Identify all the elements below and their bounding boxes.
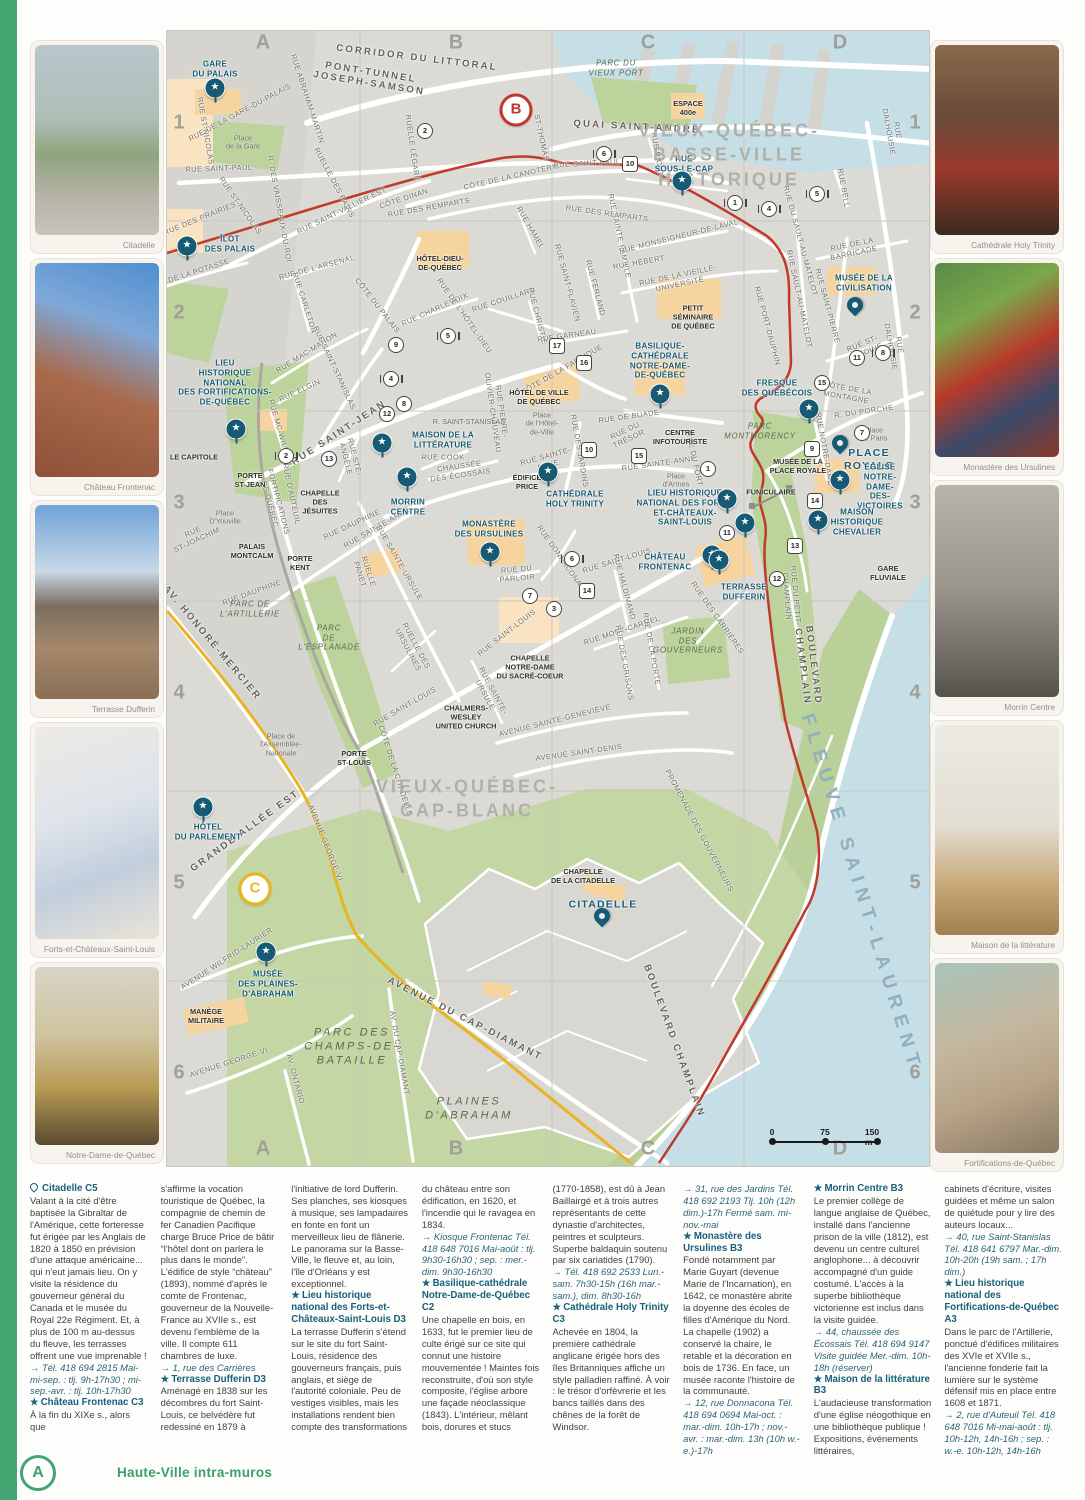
star-icon: ★	[814, 1183, 823, 1194]
district-label: VIEUX-QUÉBEC- CAP-BLANC	[376, 775, 558, 824]
photo-caption: Morrin Centre	[1004, 702, 1055, 712]
building-label: LE CAPITOLE	[170, 454, 218, 463]
grid-column-letter: D	[833, 32, 847, 55]
grid-row-number: 6	[909, 1062, 920, 1085]
poi-star-marker: ★	[717, 489, 738, 510]
grid-row-number: 1	[173, 112, 184, 135]
photo-card: Terrasse Dufferin	[30, 500, 164, 718]
poi-label: FRESQUE DES QUÉBÉCOIS	[742, 378, 813, 398]
poi-star-marker: ★	[672, 171, 693, 192]
photo-caption: Château Frontenac	[84, 482, 155, 492]
numbered-hotel-marker: 2	[417, 123, 433, 139]
photo-card: Morrin Centre	[930, 480, 1064, 716]
photo-card: Monastère des Ursulines	[930, 258, 1064, 476]
poi-label: MONASTÈRE DES URSULINES	[455, 519, 524, 539]
article-heading: ★Terrasse Dufferin D3	[161, 1374, 279, 1386]
numbered-shop-marker: 17	[549, 338, 565, 354]
photo-image	[935, 963, 1059, 1153]
poi-label: CATHÉDRALE HOLY TRINITY	[546, 489, 604, 509]
guide-map-page: CitadelleChâteau FrontenacTerrasse Duffe…	[0, 0, 1085, 1500]
poi-label: LIEU HISTORIQUE NATIONAL DES FORTIFICATI…	[178, 359, 272, 408]
poi-star-marker: ★	[256, 942, 277, 963]
grid-row-number: 2	[909, 302, 920, 325]
photo-image	[35, 45, 159, 235]
page-title: Haute-Ville intra-muros	[117, 1465, 272, 1480]
grid-column-letter: B	[449, 32, 463, 55]
adjacent-map-badge[interactable]: B	[500, 94, 533, 127]
photo-card: Forts-et-Châteaux-Saint-Louis	[30, 722, 164, 958]
grid-column-letter: C	[641, 32, 655, 55]
building-label: HÔTEL-DIEU- DE-QUÉBEC	[416, 255, 463, 273]
park-label: PARC DU VIEUX PORT	[588, 58, 643, 77]
building-label: ÉDIFICE PRICE	[513, 474, 542, 492]
building-label: MANÈGE MILITAIRE	[188, 1008, 224, 1026]
numbered-hotel-marker: 13	[321, 451, 337, 467]
numbered-hotel-marker: 12	[379, 406, 395, 422]
grid-column-letter: C	[641, 1138, 655, 1161]
poi-star-marker: ★	[480, 542, 501, 563]
grid-row-number: 3	[173, 492, 184, 515]
article-column: → 31, rue des Jardins Tél. 418 692 2193 …	[683, 1183, 801, 1451]
numbered-shop-marker: 16	[576, 355, 592, 371]
building-label: PALAIS MONTCALM	[231, 543, 274, 561]
numbered-hotel-marker: 12	[769, 571, 785, 587]
photo-caption: Cathédrale Holy Trinity	[971, 240, 1055, 250]
numbered-rest-marker: 4	[761, 201, 777, 217]
article-body: La terrasse Dufferin s'étend sur le site…	[291, 1326, 409, 1433]
building-label: CHAPELLE DE LA CITADELLE	[551, 868, 615, 886]
article-body: l'initiative de lord Dufferin. Ses planc…	[291, 1183, 409, 1290]
photo-caption: Terrasse Dufferin	[92, 704, 155, 714]
poi-label: GARE DU PALAIS	[192, 59, 237, 79]
photo-caption: Forts-et-Châteaux-Saint-Louis	[44, 944, 155, 954]
article-heading: ★Basilique-cathédrale Notre-Dame-de-Québ…	[422, 1278, 540, 1314]
building-label: PORTE KENT	[287, 555, 312, 573]
poi-star-marker: ★	[538, 462, 559, 483]
poi-star-marker: ★	[205, 78, 226, 99]
numbered-shop-marker: 13	[787, 538, 803, 554]
article-body: Fondé notamment par Marie Guyart (devenu…	[683, 1254, 801, 1397]
map-canvas: CORRIDOR DU LITTORALPONT-TUNNEL JOSEPH-S…	[166, 30, 930, 1167]
numbered-shop-marker: 10	[581, 442, 597, 458]
building-label: PETIT SÉMINAIRE DE QUÉBEC	[671, 305, 714, 332]
poi-star-marker: ★	[226, 419, 247, 440]
photo-card: Cathédrale Holy Trinity	[930, 40, 1064, 254]
grid-row-number: 4	[909, 682, 920, 705]
poi-star-marker: ★	[193, 797, 214, 818]
numbered-shop-marker: 10	[622, 156, 638, 172]
article-heading: ★Monastère des Ursulines B3	[683, 1231, 801, 1255]
photo-caption: Citadelle	[123, 240, 155, 250]
park-label: JARDIN DES GOUVERNEURS	[653, 626, 723, 655]
star-icon: ★	[553, 1302, 562, 1313]
star-icon: ★	[161, 1374, 170, 1385]
park-label: PARC DE L'ESPLANADE	[298, 623, 359, 652]
article-column: s'affirme la vocation touristique de Qué…	[161, 1183, 279, 1451]
numbered-hotel-marker: 7	[522, 588, 538, 604]
poi-star-marker: ★	[709, 550, 730, 571]
photo-image	[35, 967, 159, 1145]
numbered-site-marker: 15	[814, 375, 830, 391]
photo-image	[35, 505, 159, 699]
poi-label: HÔTEL DU PARLEMENT	[175, 822, 242, 842]
poi-label: ÎLOT DES PALAIS	[205, 234, 255, 254]
poi-star-marker: ★	[397, 467, 418, 488]
park-label: PARC MONTMORENCY	[724, 421, 796, 440]
park-label: PARC DE L'ARTILLERIE	[220, 599, 280, 618]
photo-image	[935, 263, 1059, 457]
building-label: FUNICULAIRE	[746, 489, 795, 498]
photo-caption: Maison de la littérature	[971, 940, 1055, 950]
article-column: ★Morrin Centre B3Le premier collège de l…	[814, 1183, 932, 1451]
numbered-hotel-marker: 11	[849, 350, 865, 366]
left-accent-bar	[0, 0, 17, 1500]
grid-row-number: 5	[173, 872, 184, 895]
park-label: PLAINES D'ABRAHAM	[425, 1095, 513, 1123]
scale-bar: 075150 m	[772, 1129, 878, 1149]
numbered-hotel-marker: 7	[854, 425, 870, 441]
numbered-cafe-marker: 8	[396, 396, 412, 412]
poi-star-marker: ★	[799, 399, 820, 420]
article-text-block: Citadelle C5Valant à la cité d'être bapt…	[30, 1183, 1062, 1451]
article-body: s'affirme la vocation touristique de Qué…	[161, 1183, 279, 1362]
article-heading: Citadelle C5	[30, 1183, 148, 1195]
numbered-hotel-marker: 1	[700, 461, 716, 477]
building-label: PORTE ST-JEAN	[235, 472, 266, 490]
photo-card: Maison de la littérature	[930, 720, 1064, 954]
grid-row-number: 3	[909, 492, 920, 515]
article-column: Citadelle C5Valant à la cité d'être bapt…	[30, 1183, 148, 1451]
photo-image	[935, 45, 1059, 235]
article-practical-info: → 1, rue des Carrières	[161, 1362, 279, 1374]
grid-column-letter: B	[449, 1138, 463, 1161]
photo-image	[935, 485, 1059, 697]
building-label: PORTE ST-LOUIS	[337, 750, 371, 768]
photo-caption: Fortifications-de-Québec	[964, 1158, 1055, 1168]
numbered-rest-marker: 1	[727, 195, 743, 211]
building-label: HÔTEL DE VILLE DE QUÉBEC	[509, 389, 568, 407]
place-label: Place de la Gare	[226, 135, 260, 152]
poi-star-marker: ★	[177, 236, 198, 257]
building-label: CHAPELLE DES JÉSUITES	[300, 490, 339, 517]
article-body: Le premier collège de langue anglaise de…	[814, 1195, 932, 1326]
poi-star-marker: ★	[830, 470, 851, 491]
poi-label: TERRASSE DUFFERIN	[721, 582, 767, 602]
photo-image	[35, 727, 159, 939]
article-column: (1770-1858), est dû à Jean Baillairgé et…	[553, 1183, 671, 1451]
place-label: R. SAINT-STANISLAS	[433, 418, 505, 426]
poi-star-marker: ★	[650, 384, 671, 405]
star-icon: ★	[683, 1231, 692, 1242]
article-practical-info: → Tél. 418 692 2533 Lun.-sam. 7h30-15h (…	[553, 1266, 671, 1302]
article-heading: ★Château Frontenac C3	[30, 1397, 148, 1409]
article-practical-info: → 31, rue des Jardins Tél. 418 692 2193 …	[683, 1183, 801, 1231]
poi-label: BASILIQUE- CATHÉDRALE NOTRE-DAME- DE-QUÉ…	[630, 342, 690, 381]
numbered-rest-marker: 5	[440, 328, 456, 344]
poi-label: MORRIN CENTRE	[391, 497, 426, 517]
article-body: L'audacieuse transformation d'une église…	[814, 1397, 932, 1457]
star-icon: ★	[814, 1374, 823, 1385]
place-label: Place de l'Assemblée- Nationale	[260, 732, 302, 757]
article-practical-info: → 40, rue Saint-Stanislas Tél. 418 641 6…	[944, 1231, 1062, 1279]
article-heading: ★Morrin Centre B3	[814, 1183, 932, 1195]
photo-card: Fortifications-de-Québec	[930, 958, 1064, 1172]
article-heading: ★Maison de la littérature B3	[814, 1374, 932, 1398]
numbered-rest-marker: 4	[383, 371, 399, 387]
park-label: PARC DES CHAMPS-DE- BATAILLE	[304, 1026, 400, 1067]
article-practical-info: → 44, chaussée des Écossais Tél. 418 694…	[814, 1326, 932, 1374]
grid-row-number: 1	[909, 112, 920, 135]
article-heading: ★Cathédrale Holy Trinity C3	[553, 1302, 671, 1326]
grid-row-number: 6	[173, 1062, 184, 1085]
photo-image	[935, 725, 1059, 935]
article-practical-info: → 2, rue d'Auteuil Tél. 418 648 7016 Mi-…	[944, 1409, 1062, 1457]
article-body: À la fin du XIXe s., alors que	[30, 1409, 148, 1433]
numbered-rest-marker: 5	[809, 186, 825, 202]
street-label: RUE DU PARLOIR	[499, 564, 536, 584]
star-icon: ★	[30, 1397, 39, 1408]
numbered-shop-marker: 14	[807, 493, 823, 509]
place-label: Place d'Armes	[663, 473, 690, 490]
building-label: GARE FLUVIALE	[870, 565, 906, 583]
grid-column-letter: A	[256, 1138, 270, 1161]
place-label: Place de l'Hôtel- de-Ville	[526, 411, 559, 436]
building-label: CHAPELLE NOTRE-DAME DU SACRÉ-COEUR	[497, 655, 564, 682]
photo-card: Notre-Dame-de-Québec	[30, 962, 164, 1164]
article-practical-info: → 12, rue Donnacona Tél. 418 694 0694 Ma…	[683, 1397, 801, 1457]
poi-label: MAISON HISTORIQUE CHEVALIER	[831, 507, 884, 536]
poi-label: ÉGLISE NOTRE-DAME- DES-VICTOIRES	[856, 463, 905, 512]
photo-caption: Notre-Dame-de-Québec	[66, 1150, 155, 1160]
building-label: MUSÉE DE LA PLACE ROYALE	[770, 458, 827, 476]
article-practical-info: → Kiosque Frontenac Tél. 418 648 7016 Ma…	[422, 1231, 540, 1279]
numbered-rest-marker: 6	[596, 146, 612, 162]
building-label: ESPACE 400e	[673, 100, 702, 118]
poi-star-marker: ★	[372, 433, 393, 454]
article-column: l'initiative de lord Dufferin. Ses planc…	[291, 1183, 409, 1451]
star-icon: ★	[944, 1278, 953, 1289]
article-body: du château entre son édification, en 162…	[422, 1183, 540, 1231]
article-body: (1770-1858), est dû à Jean Baillairgé et…	[553, 1183, 671, 1266]
photo-caption: Monastère des Ursulines	[963, 462, 1055, 472]
poi-star-marker: ★	[735, 513, 756, 534]
district-label: VIEUX-QUÉBEC- BASSE-VILLE HISTORIQUE	[638, 119, 820, 192]
building-label: CENTRE INFOTOURISTE	[653, 429, 707, 447]
grid-column-letter: A	[256, 32, 270, 55]
grid-row-number: 2	[173, 302, 184, 325]
photo-card: Citadelle	[30, 40, 164, 254]
poi-label: MUSÉE DE LA CIVILISATION	[835, 273, 893, 293]
article-body: Une chapelle en bois, en 1633, fut le pr…	[422, 1314, 540, 1433]
grid-row-number: 5	[909, 872, 920, 895]
building-label: CHALMERS- WESLEY UNITED CHURCH	[436, 705, 497, 732]
numbered-shop-marker: 14	[579, 583, 595, 599]
adjacent-map-badge[interactable]: C	[239, 873, 272, 906]
article-body: Achevée en 1804, la première cathédrale …	[553, 1326, 671, 1433]
map-section-badge[interactable]: A	[20, 1455, 56, 1491]
poi-star-marker: ★	[808, 510, 829, 531]
poi-label: MAISON DE LA LITTÉRATURE	[412, 430, 474, 450]
article-heading: ★Lieu historique national des Fortificat…	[944, 1278, 1062, 1326]
grid-row-number: 4	[173, 682, 184, 705]
poi-label: MUSÉE DES PLAINES- D'ABRAHAM	[238, 969, 298, 998]
numbered-rest-marker: 2	[278, 448, 294, 464]
numbered-rest-marker: 8	[875, 345, 891, 361]
numbered-rest-marker: 6	[564, 551, 580, 567]
numbered-site-marker: 11	[719, 525, 735, 541]
map-pin-icon	[28, 1181, 39, 1192]
star-icon: ★	[291, 1290, 300, 1301]
article-column: cabinets d'écriture, visites guidées et …	[944, 1183, 1062, 1451]
article-practical-info: → Tél. 418 694 2815 Mai-mi-sep. : tlj. 9…	[30, 1362, 148, 1398]
place-label: Place D'Youville	[209, 510, 241, 527]
numbered-cafe-marker: 9	[388, 337, 404, 353]
article-body: Aménagé en 1838 sur les décombres du for…	[161, 1385, 279, 1433]
article-body: Valant à la cité d'être baptisée la Gibr…	[30, 1195, 148, 1362]
numbered-shop-marker: 9	[804, 441, 820, 457]
article-heading: ★Lieu historique national des Forts-et-C…	[291, 1290, 409, 1326]
numbered-shop-marker: 15	[631, 448, 647, 464]
poi-label: CHÂTEAU FRONTENAC	[639, 552, 692, 572]
article-body: Dans le parc de l'Artillerie, ponctué d'…	[944, 1326, 1062, 1409]
article-body: cabinets d'écriture, visites guidées et …	[944, 1183, 1062, 1231]
photo-card: Château Frontenac	[30, 258, 164, 496]
photo-image	[35, 263, 159, 477]
article-column: du château entre son édification, en 162…	[422, 1183, 540, 1451]
numbered-hotel-marker: 3	[546, 601, 562, 617]
star-icon: ★	[422, 1278, 431, 1289]
